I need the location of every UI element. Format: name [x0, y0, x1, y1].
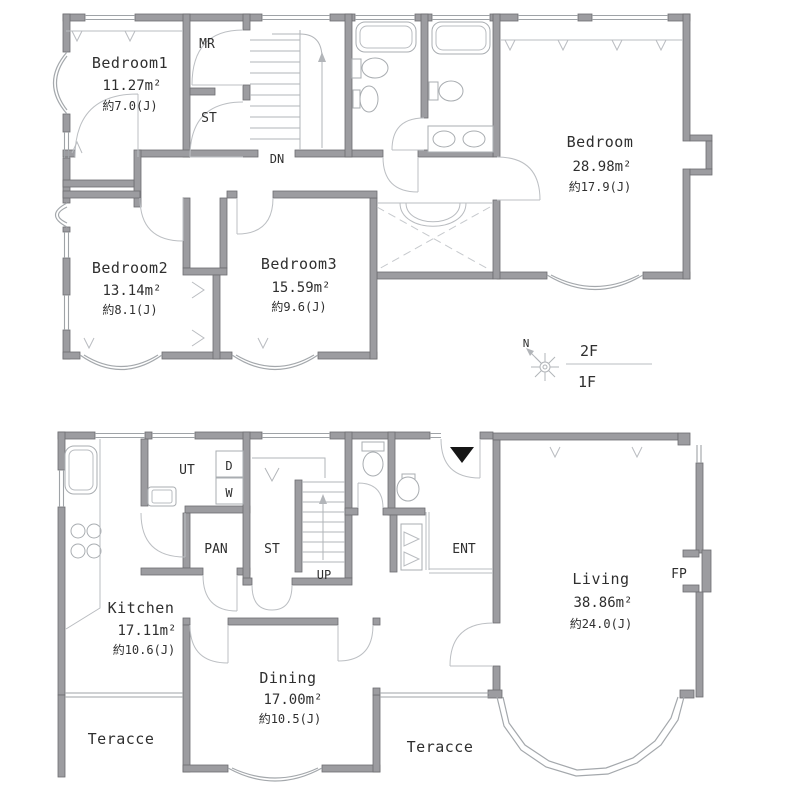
- bedroom2-tatami: 約8.1(J): [102, 302, 157, 317]
- dn-label: DN: [270, 152, 284, 166]
- ut-label: UT: [179, 463, 195, 478]
- dining-name: Dining: [259, 669, 316, 687]
- bedroom1-area: 11.27m²: [102, 78, 161, 94]
- floor-1f-label: 1F: [578, 373, 596, 391]
- bay-window-dining: [228, 768, 322, 781]
- floor-1f: UT D W PAN ST UP ENT FP Kitchen 17.11m² …: [58, 432, 711, 781]
- toilet-tank: [362, 442, 384, 451]
- floor-plan-drawing: Bedroom1 11.27m² 約7.0(J) MR ST DN Bedroo…: [0, 0, 801, 801]
- wash-basin: [397, 477, 419, 501]
- bay-window-bedroom2: [80, 355, 162, 370]
- toilet-2-tank: [429, 82, 438, 100]
- master-bedroom-tatami: 約17.9(J): [569, 179, 632, 194]
- bedroom3-name: Bedroom3: [261, 255, 337, 273]
- bedroom3-tatami: 約9.6(J): [271, 299, 326, 314]
- dining-tatami: 約10.5(J): [259, 711, 322, 726]
- kitchen-area: 17.11m²: [117, 623, 176, 639]
- living-name: Living: [572, 570, 629, 588]
- sink-pedestal: [353, 90, 360, 108]
- master-bedroom-name: Bedroom: [567, 133, 634, 151]
- bay-window-master-bedroom: [547, 275, 643, 290]
- floor-2f: Bedroom1 11.27m² 約7.0(J) MR ST DN Bedroo…: [54, 14, 713, 370]
- bay-window-bedroom3: [232, 355, 318, 370]
- dryer-label: D: [225, 459, 232, 473]
- round-niche: [56, 203, 68, 227]
- floor-plan-page: Bedroom1 11.27m² 約7.0(J) MR ST DN Bedroo…: [0, 0, 801, 801]
- st-1f-label: ST: [264, 542, 280, 557]
- floor-2f-label: 2F: [580, 342, 598, 360]
- stove-burner: [87, 544, 101, 558]
- toilet-2-bowl: [439, 81, 463, 101]
- compass-north-label: N: [523, 337, 530, 350]
- pan-label: PAN: [204, 542, 227, 557]
- stove-burner: [71, 524, 85, 538]
- toilet-1-bowl: [362, 58, 388, 78]
- compass: N: [523, 337, 559, 381]
- void-area: [377, 203, 493, 270]
- bay-window-living: [497, 697, 684, 776]
- master-bedroom-area: 28.98m²: [572, 159, 631, 175]
- bedroom2-name: Bedroom2: [92, 259, 168, 277]
- terrace-left-label: Teracce: [88, 730, 155, 748]
- kitchen-fixtures: [65, 439, 101, 629]
- mr-label: MR: [199, 37, 215, 52]
- stairs-2f: [250, 30, 326, 150]
- ent-label: ENT: [452, 542, 476, 557]
- terrace-right-label: Teracce: [407, 738, 474, 756]
- bow-window-bedroom1: [54, 52, 68, 114]
- st-2f-label: ST: [201, 111, 217, 126]
- stove-burner: [71, 544, 85, 558]
- dining-area: 17.00m²: [263, 692, 322, 708]
- living-area: 38.86m²: [573, 595, 632, 611]
- fp-label: FP: [671, 567, 687, 582]
- bedroom3-area: 15.59m²: [271, 280, 330, 296]
- washer-label: W: [225, 486, 233, 500]
- window-marks-living: [550, 447, 642, 457]
- kitchen-tatami: 約10.6(J): [113, 642, 176, 657]
- living-tatami: 約24.0(J): [570, 616, 633, 631]
- toilet-1-tank: [352, 59, 361, 78]
- bedroom1-tatami: 約7.0(J): [102, 98, 157, 113]
- stove-burner: [87, 524, 101, 538]
- floor-indicator: 2F 1F: [566, 342, 652, 391]
- entrance-marker-icon: [450, 447, 474, 463]
- bedroom1-name: Bedroom1: [92, 54, 168, 72]
- toilet-bowl: [363, 452, 383, 476]
- bedroom2-area: 13.14m²: [102, 283, 161, 299]
- up-label: UP: [317, 568, 331, 582]
- kitchen-name: Kitchen: [108, 599, 175, 617]
